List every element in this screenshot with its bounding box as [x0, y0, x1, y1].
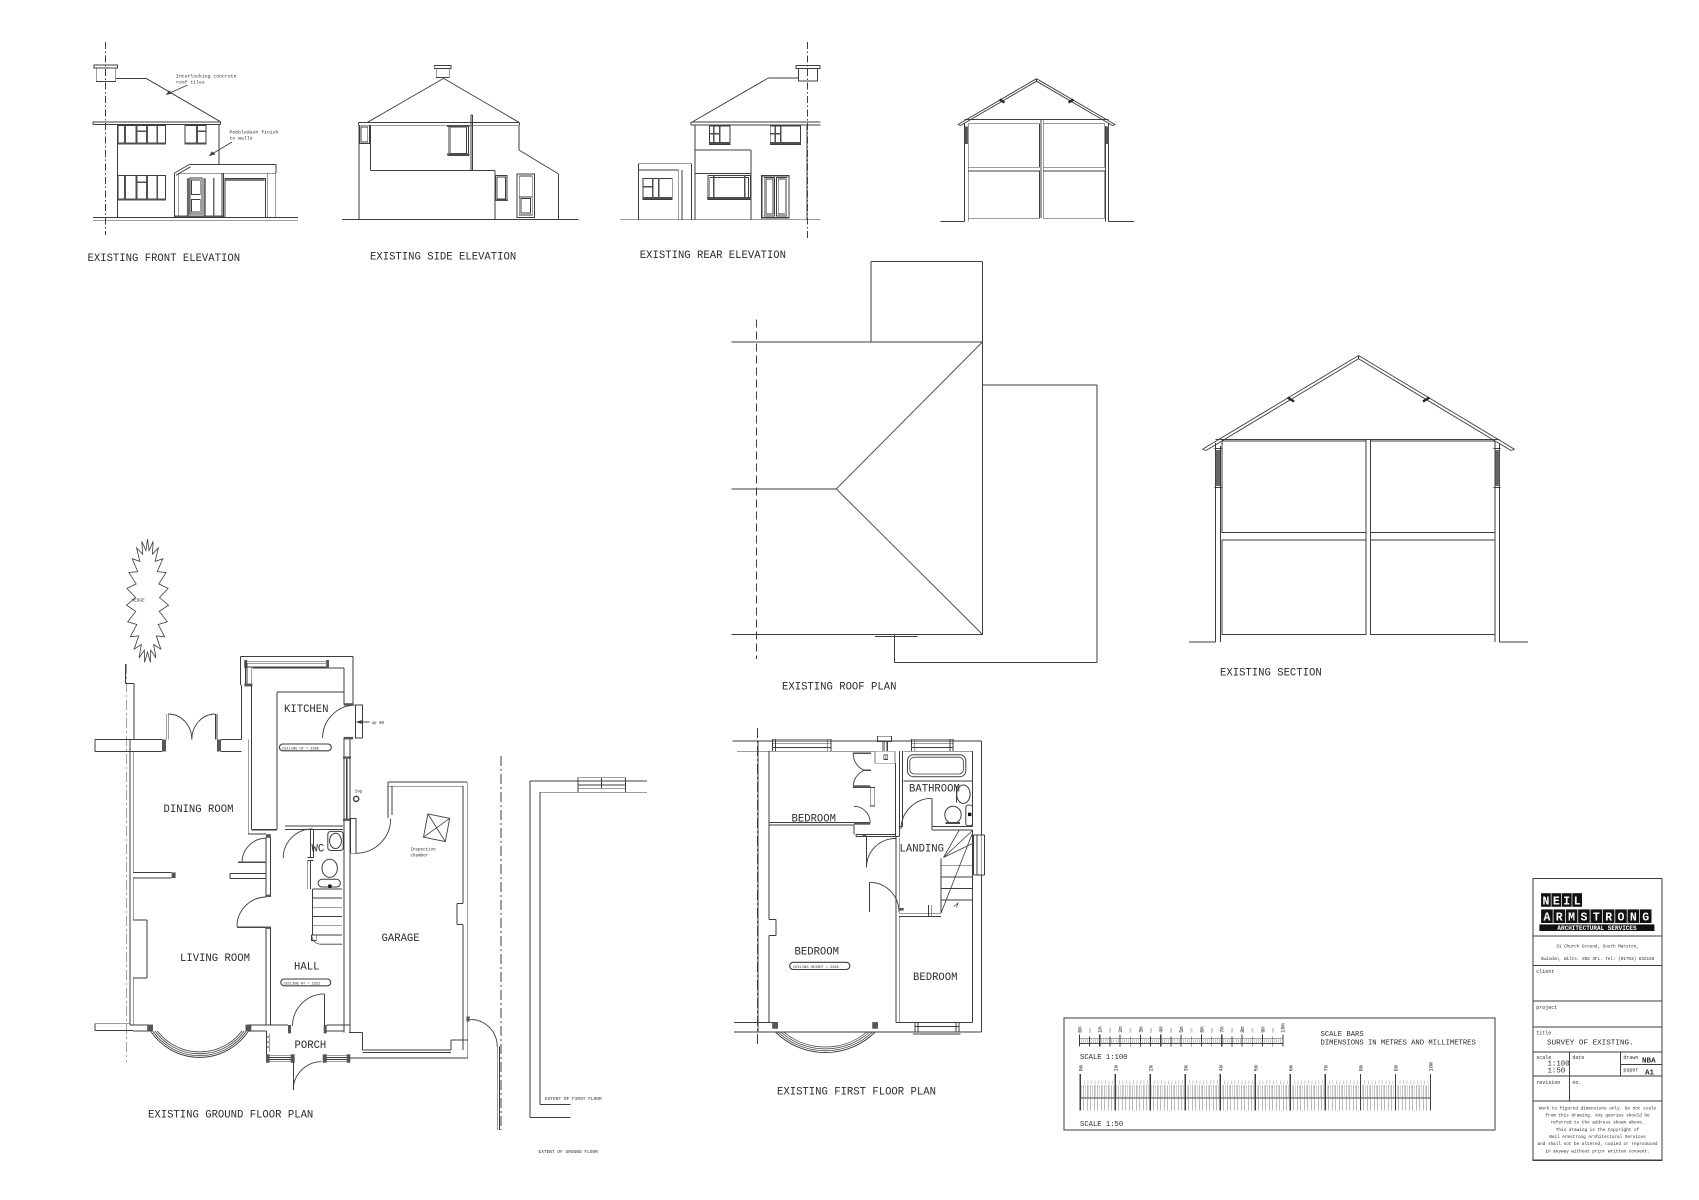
svg-text:BEDROOM: BEDROOM [913, 972, 958, 984]
svg-text:500: 500 [1251, 1080, 1254, 1085]
svg-text:E: E [1553, 895, 1560, 908]
svg-text:10m: 10m [1429, 1062, 1435, 1072]
svg-text:500: 500 [1286, 1080, 1289, 1085]
svg-text:4m: 4m [1159, 1026, 1165, 1032]
svg-text:500: 500 [1146, 1080, 1149, 1085]
svg-text:no.: no. [1572, 1080, 1581, 1086]
svg-text:3m: 3m [1183, 1065, 1189, 1071]
svg-text:M: M [1568, 912, 1575, 925]
svg-text:500: 500 [1272, 1028, 1275, 1033]
svg-text:SURVEY OF EXISTING.: SURVEY OF EXISTING. [1547, 1039, 1634, 1047]
svg-text:500: 500 [1426, 1080, 1429, 1085]
svg-text:and shall not be altered, copi: and shall not be altered, copied or repr… [1538, 1142, 1658, 1147]
svg-text:2m: 2m [1148, 1065, 1154, 1071]
svg-text:5m: 5m [1253, 1065, 1259, 1071]
svg-text:Pebbledash finish: Pebbledash finish [230, 130, 279, 136]
svg-text:to walls: to walls [230, 136, 253, 142]
svg-text:referred to the address shown: referred to the address shown above. [1551, 1121, 1645, 1126]
svg-text:EXTENT OF FIRST FLOOR: EXTENT OF FIRST FLOOR [545, 1096, 602, 1102]
svg-text:9m: 9m [1393, 1065, 1399, 1071]
svg-text:SCALE 1:50: SCALE 1:50 [1080, 1121, 1123, 1129]
svg-text:I: I [1563, 895, 1570, 908]
svg-text:LIVING ROOM: LIVING ROOM [180, 953, 250, 965]
svg-text:BEDROOM: BEDROOM [792, 814, 837, 826]
svg-text:EXISTING FRONT ELEVATION: EXISTING FRONT ELEVATION [88, 253, 241, 265]
svg-text:EXISTING REAR ELEVATION: EXISTING REAR ELEVATION [640, 250, 786, 262]
svg-text:This drawing is the Copyright: This drawing is the Copyright of [1556, 1128, 1640, 1133]
svg-text:0m: 0m [1078, 1065, 1084, 1071]
svg-text:O: O [1618, 912, 1625, 925]
svg-text:N: N [1630, 912, 1637, 925]
svg-text:R: R [1556, 912, 1563, 925]
svg-text:LANDING: LANDING [900, 844, 945, 856]
svg-text:6m: 6m [1288, 1065, 1294, 1071]
svg-text:Inspection: Inspection [411, 848, 437, 853]
svg-text:CEILING HT = 2321: CEILING HT = 2321 [284, 982, 321, 986]
svg-text:CEILING HEIGHT = 2264: CEILING HEIGHT = 2264 [793, 966, 838, 970]
svg-text:Work to figured dimensions onl: Work to figured dimensions only. Do not … [1539, 1106, 1657, 1111]
svg-text:500: 500 [1170, 1028, 1173, 1033]
svg-text:EXISTING GROUND FLOOR PLAN: EXISTING GROUND FLOOR PLAN [148, 1110, 313, 1122]
svg-text:500: 500 [1150, 1028, 1153, 1033]
svg-text:R: R [1605, 912, 1612, 925]
svg-text:7m: 7m [1220, 1026, 1226, 1032]
svg-text:EXISTING ROOF PLAN: EXISTING ROOF PLAN [782, 682, 896, 694]
svg-text:EXISTING SECTION: EXISTING SECTION [1220, 668, 1322, 680]
svg-text:up 90: up 90 [372, 722, 385, 726]
svg-text:Swindon, Wilts. SN3 4FL. Tel:: Swindon, Wilts. SN3 4FL. Tel: (01793) 83… [1541, 957, 1655, 962]
svg-text:500: 500 [1109, 1028, 1112, 1033]
svg-text:date: date [1572, 1055, 1584, 1061]
svg-text:L: L [1574, 895, 1581, 908]
svg-text:EXISTING SIDE ELEVATION: EXISTING SIDE ELEVATION [370, 252, 516, 264]
svg-text:PORCH: PORCH [295, 1040, 327, 1052]
svg-text:1m: 1m [1098, 1026, 1104, 1032]
svg-text:HALL: HALL [294, 962, 319, 974]
svg-text:500: 500 [1321, 1080, 1324, 1085]
svg-text:EXTENT OF GROUND FLOOR: EXTENT OF GROUND FLOOR [539, 1149, 599, 1155]
svg-text:client: client [1536, 969, 1554, 975]
svg-text:500: 500 [1089, 1028, 1092, 1033]
svg-text:1m: 1m [1113, 1065, 1119, 1071]
svg-text:5m: 5m [1179, 1026, 1185, 1032]
svg-text:GARAGE: GARAGE [382, 933, 420, 945]
svg-text:500: 500 [1111, 1080, 1114, 1085]
svg-text:6m: 6m [1199, 1026, 1205, 1032]
svg-text:0m: 0m [1077, 1026, 1083, 1032]
svg-text:Interlocking concrete: Interlocking concrete [176, 74, 237, 80]
svg-text:HEDGE: HEDGE [132, 599, 146, 604]
svg-text:roof tiles: roof tiles [176, 80, 205, 86]
svg-text:S: S [1580, 912, 1587, 925]
svg-text:2m: 2m [1118, 1026, 1124, 1032]
svg-text:N: N [1542, 895, 1549, 908]
svg-text:Svp: Svp [355, 791, 363, 795]
svg-text:DINING ROOM: DINING ROOM [164, 804, 234, 816]
svg-text:ARCHITECTURAL SERVICES: ARCHITECTURAL SERVICES [1557, 925, 1637, 932]
svg-text:500: 500 [1129, 1028, 1132, 1033]
svg-text:500: 500 [1181, 1080, 1184, 1085]
svg-text:500: 500 [1231, 1028, 1234, 1033]
svg-text:CEILING HT = 2350: CEILING HT = 2350 [282, 747, 319, 751]
svg-text:B: B [885, 756, 887, 760]
svg-text:8m: 8m [1358, 1065, 1364, 1071]
svg-text:paper: paper [1623, 1067, 1638, 1073]
svg-text:SCALE BARS: SCALE BARS [1321, 1031, 1364, 1039]
svg-text:KITCHEN: KITCHEN [284, 704, 329, 716]
svg-text:revision: revision [1536, 1080, 1560, 1086]
svg-text:DIMENSIONS IN METRES AND MILLI: DIMENSIONS IN METRES AND MILLIMETRES [1321, 1040, 1476, 1048]
svg-text:500: 500 [1211, 1028, 1214, 1033]
svg-text:4m: 4m [1218, 1065, 1224, 1071]
svg-text:8m: 8m [1240, 1026, 1246, 1032]
svg-text:500: 500 [1391, 1080, 1394, 1085]
svg-text:in anyway without prior writte: in anyway without prior written consent. [1545, 1149, 1649, 1154]
svg-text:chamber: chamber [411, 854, 429, 859]
svg-text:drawn: drawn [1623, 1055, 1638, 1061]
svg-text:500: 500 [1216, 1080, 1219, 1085]
svg-text:500: 500 [1356, 1080, 1359, 1085]
svg-text:SCALE 1:100: SCALE 1:100 [1080, 1054, 1127, 1062]
svg-text:9m: 9m [1260, 1026, 1266, 1032]
svg-text:7m: 7m [1323, 1065, 1329, 1071]
svg-text:A: A [1543, 912, 1550, 925]
svg-text:project: project [1536, 1005, 1557, 1011]
svg-text:T: T [1593, 912, 1600, 925]
svg-text:BATHROOM: BATHROOM [909, 784, 960, 796]
svg-text:1:50: 1:50 [1548, 1068, 1566, 1076]
svg-text:from this drawing. Any queries: from this drawing. Any queries should be [1545, 1114, 1650, 1119]
svg-text:3m: 3m [1138, 1026, 1144, 1032]
svg-text:500: 500 [1190, 1028, 1193, 1033]
svg-text:10m: 10m [1281, 1023, 1287, 1033]
svg-text:WC: WC [312, 844, 325, 856]
svg-text:31 Church Ground, South Marsto: 31 Church Ground, South Marston, [1556, 944, 1639, 949]
svg-text:G: G [1642, 912, 1649, 925]
svg-text:Neil Armstrong Architectural S: Neil Armstrong Architectural Services [1549, 1135, 1646, 1140]
svg-text:500: 500 [1251, 1028, 1254, 1033]
svg-text:BEDROOM: BEDROOM [795, 947, 840, 959]
svg-text:title: title [1536, 1031, 1551, 1037]
svg-text:EXISTING FIRST FLOOR PLAN: EXISTING FIRST FLOOR PLAN [777, 1087, 936, 1099]
